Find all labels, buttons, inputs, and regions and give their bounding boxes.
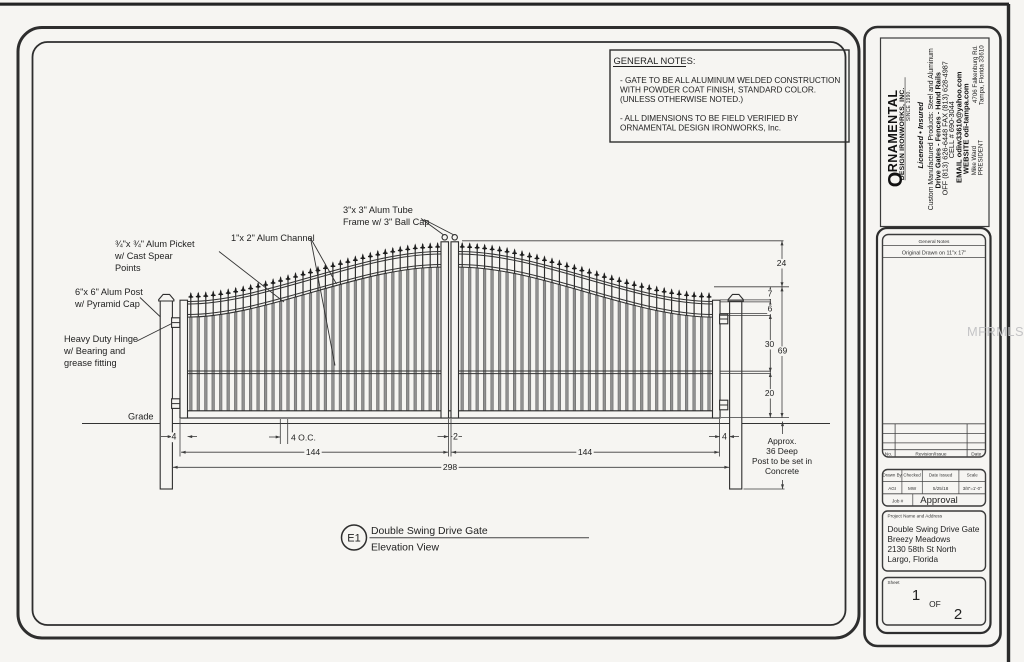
svg-text:30: 30	[765, 339, 775, 349]
svg-text:Double Swing Drive Gate: Double Swing Drive Gate	[888, 525, 980, 534]
svg-text:Heavy Duty Hinge: Heavy Duty Hinge	[64, 334, 138, 344]
svg-text:36 Deep: 36 Deep	[766, 446, 798, 456]
svg-text:1"x 2" Alum Channel: 1"x 2" Alum Channel	[231, 233, 315, 243]
svg-text:w/ Cast Spear: w/ Cast Spear	[114, 251, 173, 261]
svg-text:Sheet: Sheet	[888, 580, 901, 585]
svg-text:Concrete: Concrete	[765, 466, 799, 476]
svg-text:MW: MW	[908, 486, 917, 491]
svg-text:Scale: Scale	[967, 473, 979, 478]
svg-text:DESIGN IRONWORKS, INC.: DESIGN IRONWORKS, INC.	[899, 87, 906, 180]
svg-text:- ALL DIMENSIONS TO BE FIELD V: - ALL DIMENSIONS TO BE FIELD VERIFIED BY	[620, 114, 799, 123]
svg-text:24: 24	[777, 258, 787, 268]
svg-text:Date Issued: Date Issued	[929, 473, 953, 478]
svg-text:Date: Date	[971, 451, 981, 457]
svg-text:144: 144	[306, 447, 321, 457]
svg-text:Post to be set in: Post to be set in	[752, 456, 812, 466]
svg-text:AGI: AGI	[888, 486, 896, 491]
svg-text:GENERAL NOTES:: GENERAL NOTES:	[614, 55, 696, 66]
svg-text:Approval: Approval	[920, 495, 958, 506]
svg-text:ORNAMENTAL DESIGN IRONWORKS, I: ORNAMENTAL DESIGN IRONWORKS, Inc.	[620, 124, 781, 133]
svg-text:w/ Pyramid Cap: w/ Pyramid Cap	[74, 299, 140, 309]
svg-text:OF: OF	[929, 599, 941, 609]
svg-text:3"x 3" Alum Tube: 3"x 3" Alum Tube	[343, 205, 413, 215]
svg-text:Job #: Job #	[892, 499, 904, 504]
svg-text:General Notes: General Notes	[919, 239, 951, 245]
svg-text:WEBSITE odi-tampa.com: WEBSITE odi-tampa.com	[961, 83, 970, 174]
svg-text:7: 7	[768, 289, 773, 299]
svg-text:MFRMLS: MFRMLS	[967, 324, 1024, 339]
svg-text:SINCE 1990.: SINCE 1990.	[906, 90, 912, 121]
svg-text:¾"x ¾" Alum Picket: ¾"x ¾" Alum Picket	[115, 239, 195, 249]
svg-text:Drawn By: Drawn By	[883, 473, 903, 478]
svg-text:Revision/Issue: Revision/Issue	[915, 451, 947, 457]
svg-text:No.: No.	[885, 451, 892, 457]
svg-text:3/8"=1'-0": 3/8"=1'-0"	[963, 486, 982, 491]
svg-text:20: 20	[765, 388, 775, 398]
svg-text:6"x 6" Alum Post: 6"x 6" Alum Post	[75, 287, 143, 297]
svg-text:2: 2	[453, 432, 458, 442]
svg-text:Approx.: Approx.	[768, 436, 797, 446]
svg-text:Checked: Checked	[903, 473, 921, 478]
svg-text:Project Name and Address: Project Name and Address	[888, 514, 943, 519]
svg-text:Grade: Grade	[128, 412, 154, 422]
svg-text:WITH POWDER COAT FINISH, STAND: WITH POWDER COAT FINISH, STANDARD COLOR.	[620, 86, 816, 95]
svg-text:grease fitting: grease fitting	[64, 358, 117, 368]
svg-text:2: 2	[954, 606, 962, 623]
svg-text:PRESIDENT: PRESIDENT	[977, 140, 984, 176]
svg-text:Double Swing Drive Gate: Double Swing Drive Gate	[371, 526, 488, 537]
svg-text:(UNLESS OTHERWISE NOTED.): (UNLESS OTHERWISE NOTED.)	[620, 95, 743, 104]
svg-text:2130 58th St North: 2130 58th St North	[888, 545, 957, 554]
svg-text:69: 69	[778, 346, 788, 356]
svg-text:RNAMENTAL: RNAMENTAL	[886, 90, 900, 173]
svg-text:4 O.C.: 4 O.C.	[291, 432, 316, 442]
svg-text:Largo, Florida: Largo, Florida	[888, 555, 939, 564]
svg-text:Original Drawn on 11"x 17": Original Drawn on 11"x 17"	[902, 251, 966, 257]
svg-text:Tampa, Florida 33610: Tampa, Florida 33610	[978, 45, 985, 105]
svg-text:4: 4	[722, 432, 727, 442]
svg-text:Elevation View: Elevation View	[371, 543, 439, 554]
svg-text:Points: Points	[115, 263, 141, 273]
svg-text:w/ Bearing and: w/ Bearing and	[63, 346, 125, 356]
svg-text:Frame w/ 3" Ball Cap: Frame w/ 3" Ball Cap	[343, 217, 430, 227]
svg-text:144: 144	[578, 447, 593, 457]
svg-text:6: 6	[768, 304, 773, 314]
svg-text:298: 298	[443, 462, 458, 472]
svg-text:1: 1	[912, 587, 920, 604]
svg-text:4: 4	[172, 432, 177, 442]
svg-text:Breezy Meadows: Breezy Meadows	[888, 535, 951, 544]
svg-text:- GATE TO BE ALL ALUMINUM WELD: - GATE TO BE ALL ALUMINUM WELDED CONSTRU…	[620, 76, 840, 85]
svg-text:E1: E1	[347, 533, 360, 545]
svg-text:Licensed • Insured: Licensed • Insured	[916, 102, 925, 169]
svg-text:5/25/18: 5/25/18	[933, 486, 949, 491]
